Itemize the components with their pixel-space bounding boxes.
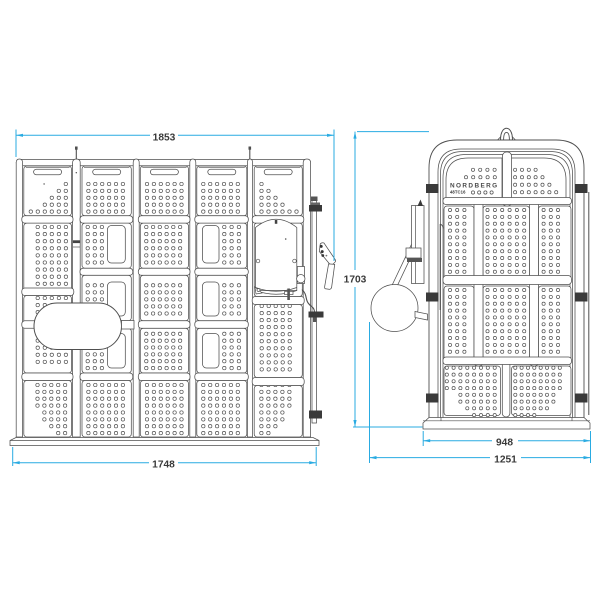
svg-text:1748: 1748 bbox=[152, 460, 175, 471]
svg-text:1251: 1251 bbox=[494, 455, 517, 466]
svg-text:48TC16: 48TC16 bbox=[450, 189, 466, 194]
svg-text:1853: 1853 bbox=[153, 132, 176, 143]
svg-text:948: 948 bbox=[496, 438, 513, 449]
svg-text:1703: 1703 bbox=[344, 275, 367, 286]
